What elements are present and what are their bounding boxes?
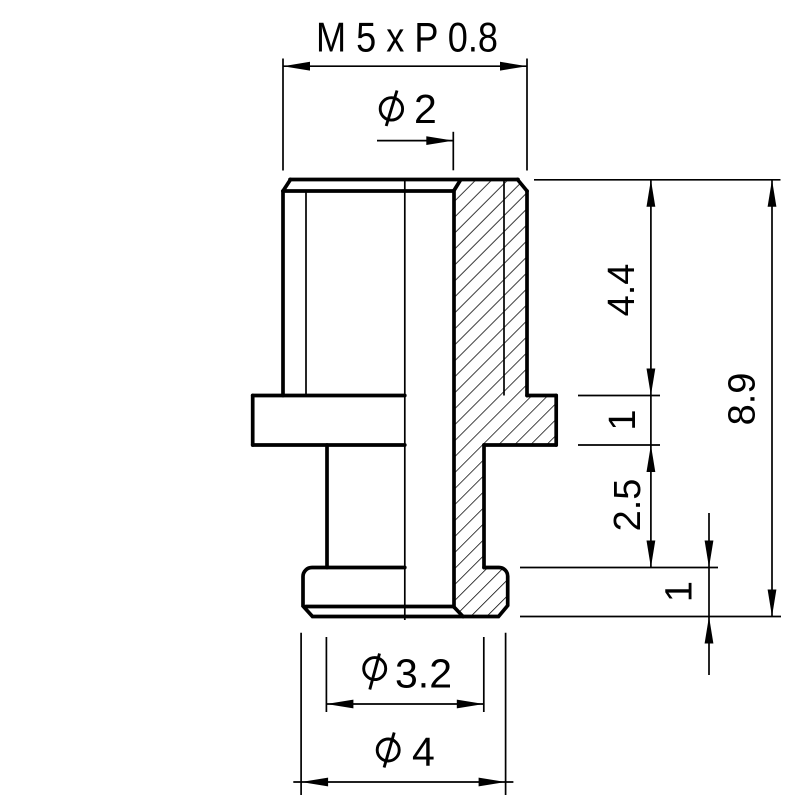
svg-text:1: 1 <box>602 409 644 430</box>
svg-text:4.4: 4.4 <box>601 264 643 317</box>
svg-text:8.9: 8.9 <box>722 373 764 426</box>
svg-text:4: 4 <box>412 729 435 775</box>
svg-text:M 5 x P 0.8: M 5 x P 0.8 <box>316 14 498 61</box>
svg-text:3.2: 3.2 <box>395 651 452 697</box>
svg-text:1: 1 <box>659 581 701 602</box>
svg-text:2: 2 <box>414 86 437 132</box>
svg-text:2.5: 2.5 <box>607 479 649 532</box>
